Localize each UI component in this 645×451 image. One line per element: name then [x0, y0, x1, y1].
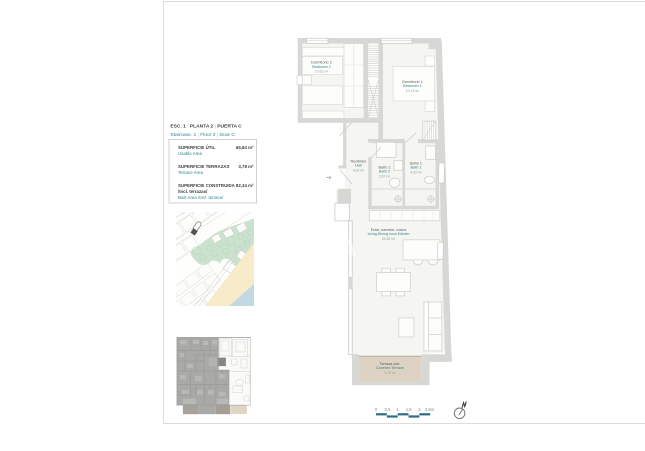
- svg-text:ESC. 1 | PLANTA 2 | PUERTA C: ESC. 1 | PLANTA 2 | PUERTA C: [170, 123, 242, 129]
- svg-text:2,5m: 2,5m: [425, 407, 435, 412]
- svg-text:Usable Area: Usable Area: [178, 151, 202, 156]
- svg-text:10,62 m²: 10,62 m²: [315, 70, 329, 74]
- svg-text:Living-Dining room Kitchen: Living-Dining room Kitchen: [368, 232, 410, 236]
- svg-text:Terrace Area: Terrace Area: [178, 170, 203, 175]
- svg-text:Built Area /Incl. terrace/: Built Area /Incl. terrace/: [178, 195, 224, 200]
- svg-text:3,78 m²: 3,78 m²: [384, 371, 396, 375]
- svg-text:4,02 m²: 4,02 m²: [353, 169, 365, 173]
- svg-text:26,30 m²: 26,30 m²: [382, 237, 396, 241]
- svg-text:SUPERFICIE TERRAZAS: SUPERFICIE TERRAZAS: [178, 164, 230, 169]
- svg-text:Bedroom 2: Bedroom 2: [312, 65, 331, 69]
- svg-text:0,5: 0,5: [385, 407, 391, 412]
- svg-text:65,84 m²: 65,84 m²: [236, 145, 254, 150]
- svg-text:Covered Terrace: Covered Terrace: [376, 366, 404, 370]
- svg-text:Hall: Hall: [355, 164, 362, 168]
- svg-text:82,34 m²: 82,34 m²: [236, 183, 254, 188]
- svg-text:Bath 2: Bath 2: [379, 170, 390, 174]
- svg-text:SUPERFICIE CONSTRUIDA: SUPERFICIE CONSTRUIDA: [178, 183, 236, 188]
- svg-text:SUPERFICIE ÚTIL: SUPERFICIE ÚTIL: [178, 145, 216, 150]
- svg-text:10,74 m²: 10,74 m²: [406, 89, 420, 93]
- svg-text:4,33 m²: 4,33 m²: [410, 171, 422, 175]
- svg-text:Bedroom 1: Bedroom 1: [403, 84, 422, 88]
- svg-text:1: 1: [397, 407, 400, 412]
- svg-text:A: A: [339, 233, 358, 263]
- svg-text:/Incl. terrazas/: /Incl. terrazas/: [178, 189, 208, 194]
- svg-text:Dormitorio 2: Dormitorio 2: [311, 61, 332, 65]
- svg-text:3,78 m²: 3,78 m²: [238, 164, 254, 169]
- svg-text:2: 2: [418, 407, 421, 412]
- svg-text:Staircase. 1 | Floor 2 | Doo: Staircase. 1 | Floor 2 | Door C: [170, 132, 235, 138]
- svg-text:2,67 m²: 2,67 m²: [379, 175, 391, 179]
- svg-text:Bath 1: Bath 1: [411, 166, 422, 170]
- svg-text:0: 0: [375, 407, 378, 412]
- svg-text:1,5: 1,5: [406, 407, 412, 412]
